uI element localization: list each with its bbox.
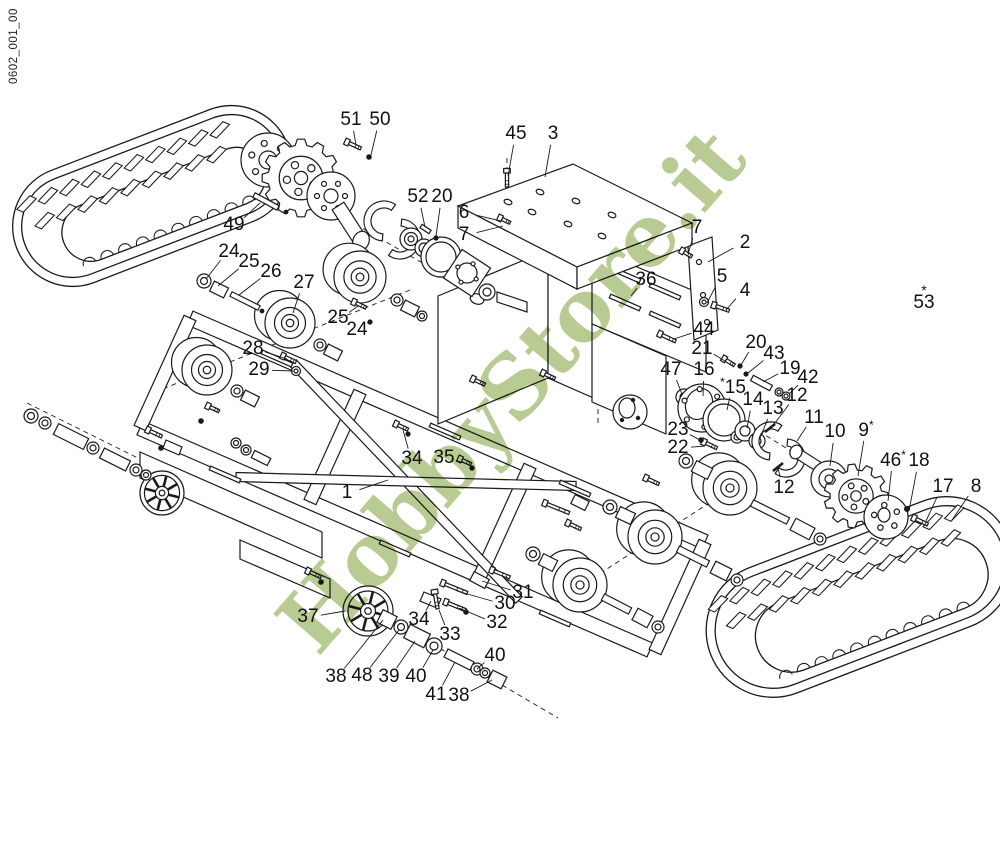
callout-18: 18	[908, 451, 929, 471]
callout-9: 9*	[858, 419, 873, 441]
callout-50: 50	[369, 110, 390, 130]
callout-39: 39	[378, 667, 399, 687]
parts-diagram-page: HobbyStore.it 0602_001_00 51504535220496…	[0, 0, 1000, 861]
callout-24: 24	[218, 242, 239, 262]
callout-40: 40	[484, 646, 505, 666]
callout-28: 28	[242, 339, 263, 359]
callout-13: 13	[762, 399, 783, 419]
callout-46: 46*	[880, 449, 906, 471]
callout-33: 33	[439, 625, 460, 645]
callout-8: 8	[971, 477, 982, 497]
callout-45: 45	[505, 124, 526, 144]
callout-32: 32	[486, 613, 507, 633]
callout-16: 16	[693, 360, 714, 380]
callout-29: 29	[248, 360, 269, 380]
doc-code: 0602_001_00	[8, 8, 20, 84]
callout-53: *53	[913, 287, 934, 313]
callout-44: 44	[693, 320, 714, 340]
callout-11: 11	[804, 408, 824, 428]
callout-3: 3	[548, 124, 559, 144]
mounting-plate	[458, 164, 692, 289]
callout-20: 20	[431, 187, 452, 207]
callout-36: 36	[635, 270, 656, 290]
callout-4: 4	[740, 281, 751, 301]
callout-7: 7	[692, 218, 703, 238]
callout-25: 25	[238, 252, 259, 272]
callout-30: 30	[494, 594, 515, 614]
callout-12: 12	[773, 478, 794, 498]
callout-7: 7	[459, 225, 470, 245]
callout-41: 41	[425, 685, 446, 705]
callout-10: 10	[824, 422, 845, 442]
callout-21: 21	[691, 339, 712, 359]
callout-2: 2	[740, 233, 751, 253]
callout-26: 26	[260, 262, 281, 282]
callout-6: 6	[459, 203, 470, 223]
callout-34: 34	[408, 610, 429, 630]
callout-17: 17	[932, 477, 953, 497]
callout-5: 5	[717, 267, 728, 287]
callout-34: 34	[401, 449, 422, 469]
callout-14: 14	[742, 390, 763, 410]
callout-35: 35	[433, 448, 454, 468]
callout-1: 1	[342, 483, 353, 503]
callout-49: 49	[223, 215, 244, 235]
callout-31: 31	[512, 583, 533, 603]
callout-51: 51	[340, 110, 361, 130]
callout-48: 48	[351, 666, 372, 686]
callout-22: 22	[667, 438, 688, 458]
callout-37: 37	[297, 607, 318, 627]
callout-38: 38	[448, 686, 469, 706]
callout-40: 40	[405, 667, 426, 687]
callout-27: 27	[293, 273, 314, 293]
callout-12: 12	[786, 386, 807, 406]
callout-38: 38	[325, 667, 346, 687]
callout-52: 52	[407, 187, 428, 207]
callout-24: 24	[346, 320, 367, 340]
callout-25: 25	[327, 308, 348, 328]
exploded-parts-diagram	[0, 0, 1000, 861]
callout-47: 47	[660, 360, 681, 380]
